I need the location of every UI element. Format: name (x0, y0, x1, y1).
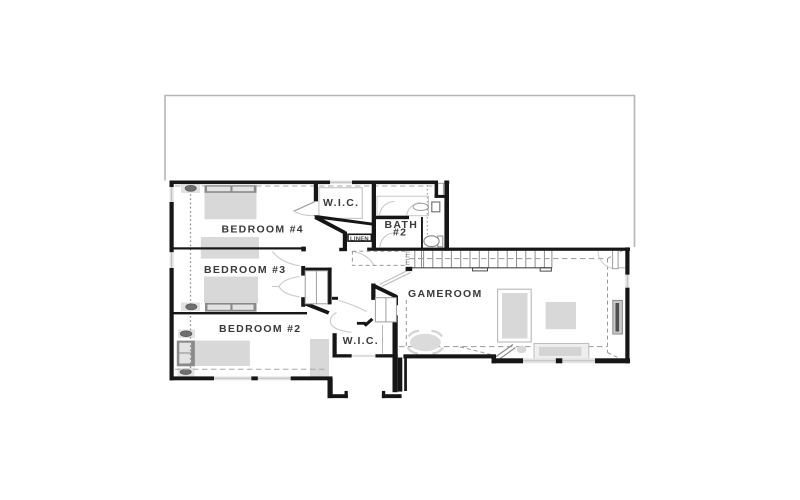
svg-text:BEDROOM #3: BEDROOM #3 (204, 264, 286, 276)
svg-text:BEDROOM #4: BEDROOM #4 (222, 223, 304, 235)
svg-text:W.I.C.: W.I.C. (343, 335, 379, 347)
svg-text:BEDROOM #2: BEDROOM #2 (219, 323, 301, 335)
svg-text:#2: #2 (393, 227, 407, 239)
svg-text:LINEN: LINEN (350, 236, 369, 242)
svg-text:W.I.C.: W.I.C. (323, 197, 359, 209)
svg-text:GAMEROOM: GAMEROOM (408, 288, 483, 300)
